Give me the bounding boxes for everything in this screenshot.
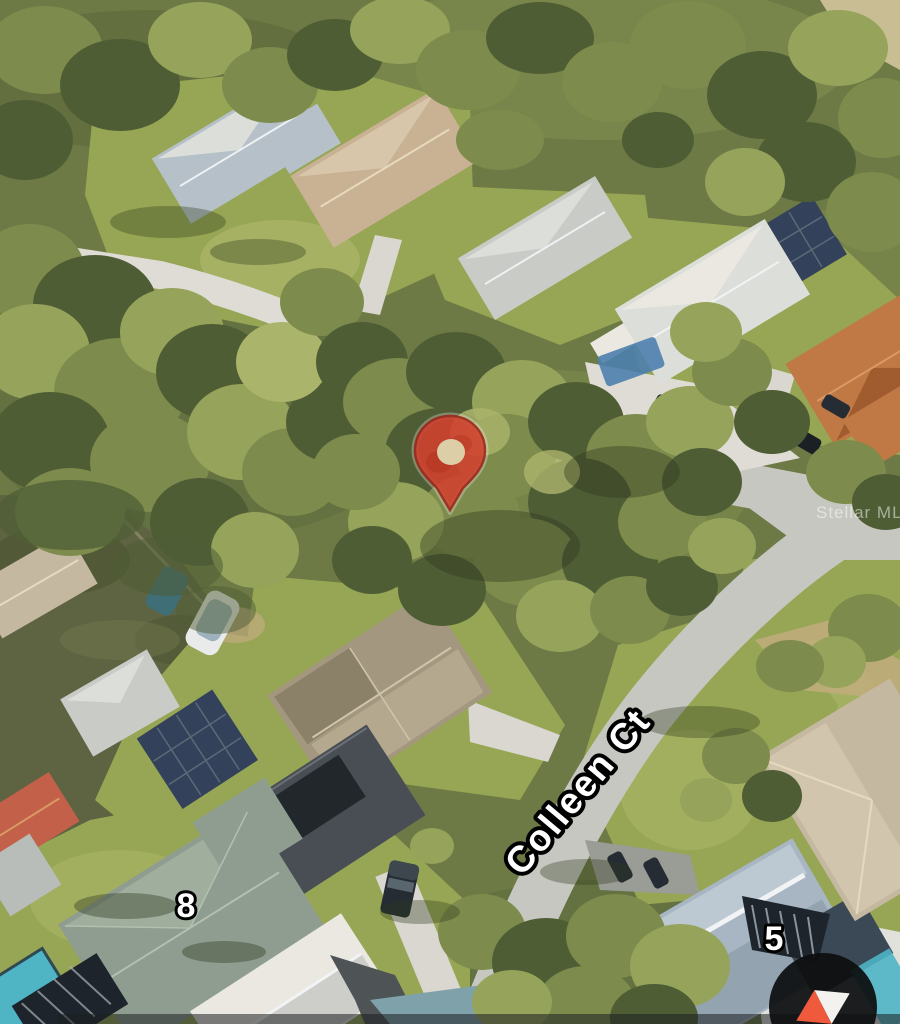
compass-icon[interactable] [767,951,879,1024]
location-pin-icon[interactable] [405,410,495,515]
aerial-map-photo[interactable]: Colleen Ct 8 5 Stellar MLS [0,0,900,1024]
